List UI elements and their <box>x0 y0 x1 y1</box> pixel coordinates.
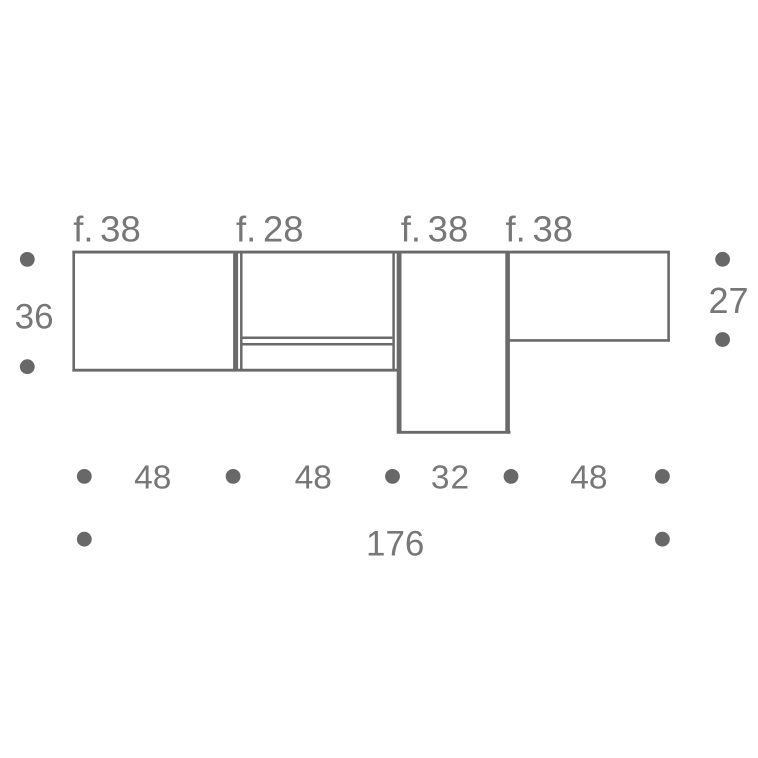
svg-text:f. 38: f. 38 <box>401 208 469 249</box>
svg-text:36: 36 <box>15 298 54 337</box>
svg-text:48: 48 <box>570 460 607 497</box>
svg-text:48: 48 <box>295 460 332 497</box>
svg-text:f. 38: f. 38 <box>73 208 141 249</box>
svg-text:32: 32 <box>431 460 470 497</box>
svg-text:27: 27 <box>708 280 748 321</box>
svg-text:48: 48 <box>134 460 171 497</box>
svg-text:176: 176 <box>366 525 424 564</box>
svg-text:f. 38: f. 38 <box>506 208 574 249</box>
svg-text:f. 28: f. 28 <box>236 208 304 249</box>
